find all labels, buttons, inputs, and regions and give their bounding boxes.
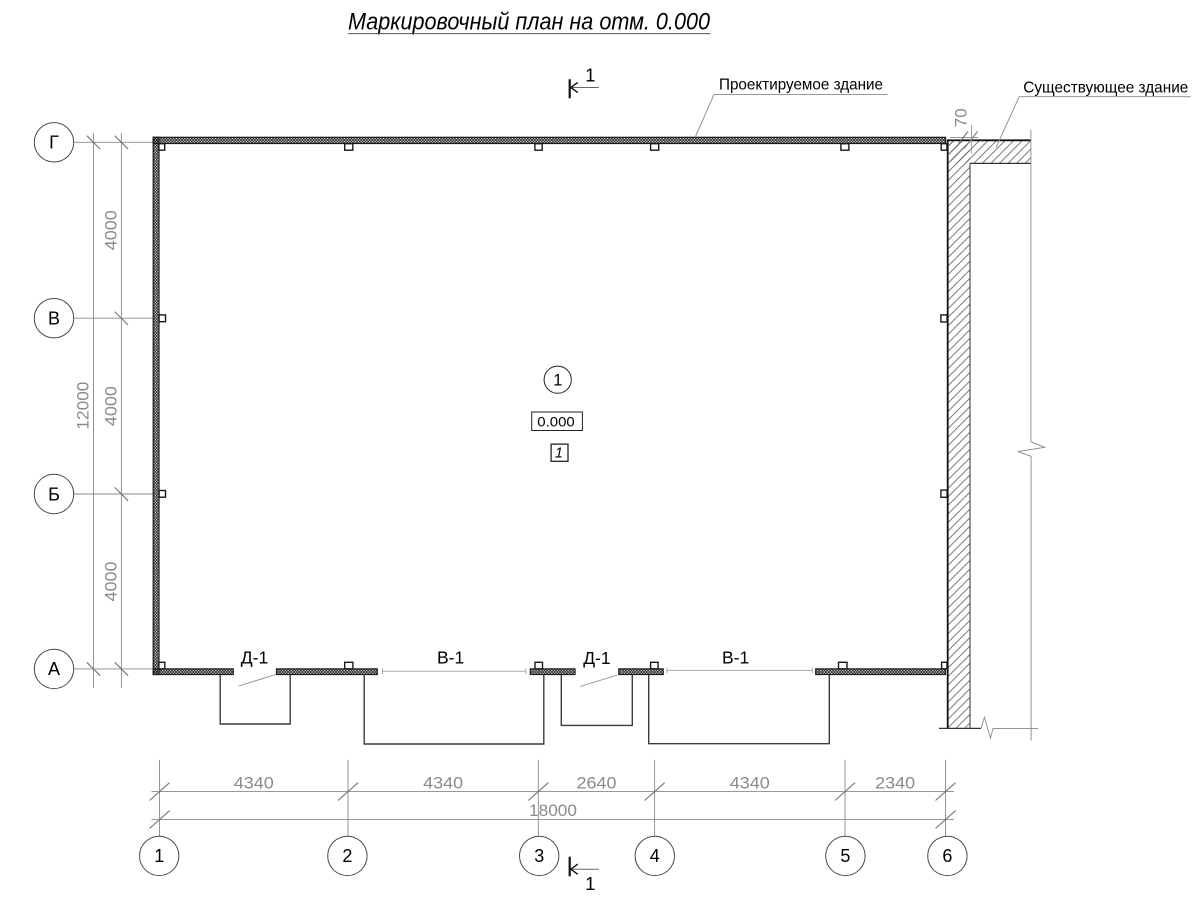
svg-text:1: 1: [555, 445, 563, 461]
svg-text:Существующее здание: Существующее здание: [1023, 80, 1188, 97]
svg-text:В: В: [48, 309, 60, 329]
svg-text:Д-1: Д-1: [241, 648, 268, 668]
svg-text:4: 4: [650, 846, 660, 866]
svg-text:Б: Б: [48, 484, 60, 504]
svg-text:12000: 12000: [74, 382, 93, 430]
svg-text:Г: Г: [49, 133, 59, 153]
svg-text:18000: 18000: [529, 801, 577, 820]
svg-text:А: А: [48, 659, 60, 679]
svg-text:Д-1: Д-1: [583, 648, 610, 668]
svg-text:4340: 4340: [423, 773, 463, 792]
svg-text:4000: 4000: [102, 386, 121, 426]
svg-text:70: 70: [952, 108, 971, 127]
svg-text:5: 5: [840, 846, 850, 866]
svg-text:6: 6: [942, 846, 952, 866]
svg-text:2: 2: [342, 846, 352, 866]
svg-text:1: 1: [553, 372, 562, 390]
svg-text:4000: 4000: [102, 562, 121, 602]
svg-text:0.000: 0.000: [537, 414, 575, 430]
svg-text:4340: 4340: [234, 773, 274, 792]
svg-text:Маркировочный план на отм. 0.0: Маркировочный план на отм. 0.000: [348, 8, 711, 35]
svg-text:В-1: В-1: [722, 648, 749, 668]
svg-text:2340: 2340: [875, 773, 915, 792]
svg-text:4340: 4340: [730, 773, 770, 792]
svg-text:В-1: В-1: [437, 648, 464, 668]
svg-text:1: 1: [154, 846, 164, 866]
svg-text:3: 3: [534, 846, 544, 866]
svg-text:1: 1: [585, 873, 595, 894]
svg-text:4000: 4000: [102, 210, 121, 250]
svg-text:Проектируемое здание: Проектируемое здание: [719, 76, 883, 93]
svg-text:1: 1: [585, 65, 595, 86]
svg-text:2640: 2640: [577, 773, 617, 792]
